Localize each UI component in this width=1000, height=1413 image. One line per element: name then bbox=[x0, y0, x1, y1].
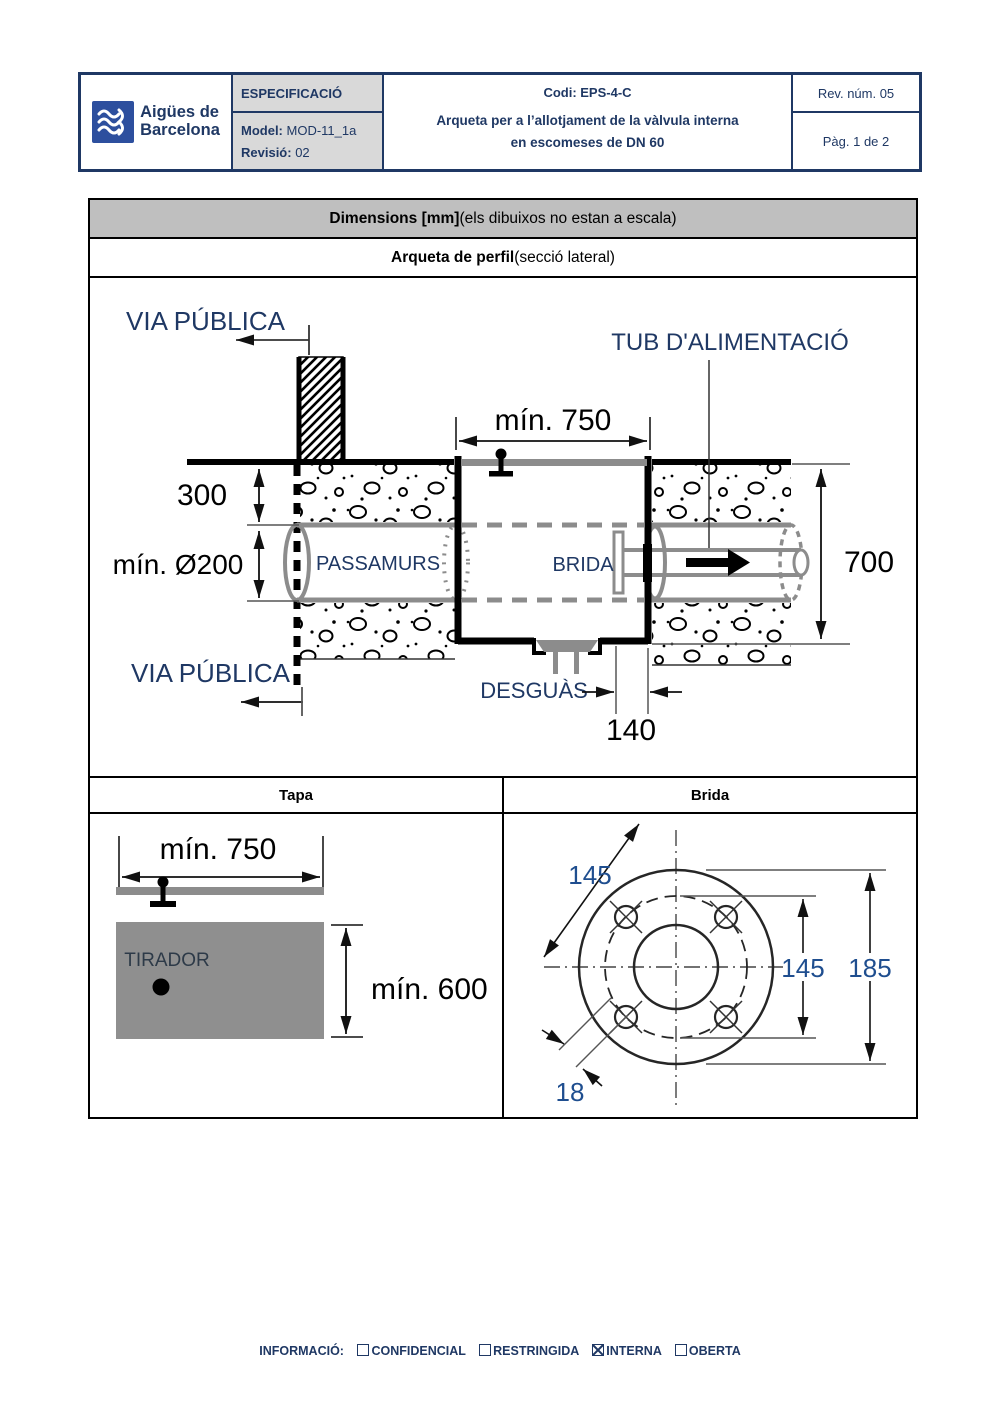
dim-300-label: 300 bbox=[177, 479, 227, 512]
checkbox-confidencial-icon bbox=[357, 1344, 369, 1356]
tapa-dim-min-750: mín. 750 bbox=[119, 833, 323, 890]
document-header-table: Aigües de Barcelona ESPECIFICACIÓ Model:… bbox=[78, 72, 922, 172]
main-drawing-panel: VIA PÚBLICA TUB D'ALIMENTACIÓ mín. 750 bbox=[90, 278, 916, 778]
footer-interna-label: INTERNA bbox=[606, 1344, 661, 1358]
desguas-label: DESGUÀS bbox=[480, 678, 588, 703]
revision-label: Revisió: bbox=[241, 145, 292, 160]
footer-restringida-label: RESTRINGIDA bbox=[493, 1344, 579, 1358]
dim-700-label: 700 bbox=[844, 546, 894, 579]
document-title-line1: Arqueta per a l’allotjament de la vàlvul… bbox=[384, 113, 791, 128]
document-title-cell: Codi: EPS-4-C Arqueta per a l’allotjamen… bbox=[384, 75, 793, 169]
document-title-line2: en escomeses de DN 60 bbox=[384, 135, 791, 150]
model-revision-cell: Model: MOD-11_1a Revisió: 02 bbox=[231, 113, 384, 169]
brida-label: BRIDA bbox=[552, 554, 614, 576]
dimensions-bar-note: (els dibuixos no estan a escala) bbox=[459, 210, 676, 228]
aigues-de-barcelona-logo-icon bbox=[92, 101, 134, 143]
tapa-drawing: mín. 750 TIRADOR bbox=[90, 814, 502, 1117]
dim-140-label: 140 bbox=[606, 714, 656, 747]
tapa-min-600-label: mín. 600 bbox=[371, 973, 488, 1006]
brida-145-diag-label: 145 bbox=[568, 860, 611, 890]
dimensions-bar-bold: Dimensions [mm] bbox=[329, 210, 459, 228]
section-title-bar: Arqueta de perfil (secció lateral) bbox=[90, 239, 916, 278]
tirador-dot bbox=[153, 979, 170, 996]
tapa-side-view bbox=[116, 877, 324, 908]
model-label: Model: bbox=[241, 123, 283, 138]
model-value: MOD-11_1a bbox=[283, 123, 356, 138]
tub-alimentacio-label: TUB D'ALIMENTACIÓ bbox=[611, 329, 849, 356]
dim-min-750: mín. 750 bbox=[456, 404, 650, 450]
checkbox-restringida-icon bbox=[479, 1344, 491, 1356]
document-code: Codi: EPS-4-C bbox=[384, 85, 791, 100]
tapa-drawing-panel: mín. 750 TIRADOR bbox=[90, 814, 504, 1117]
footer-confidencial-label: CONFIDENCIAL bbox=[371, 1344, 465, 1358]
page-number: Pàg. 1 de 2 bbox=[793, 113, 919, 169]
brida-18-label: 18 bbox=[556, 1077, 585, 1107]
tirador-label: TIRADOR bbox=[124, 950, 210, 971]
flow-direction-arrow-icon bbox=[686, 549, 750, 576]
hatched-wall bbox=[299, 357, 343, 462]
footer-label: INFORMACIÓ: bbox=[259, 1344, 344, 1358]
checkbox-oberta-icon bbox=[675, 1344, 687, 1356]
tapa-min-750-label: mín. 750 bbox=[160, 833, 277, 866]
brand-name: Aigües de Barcelona bbox=[140, 104, 220, 140]
dim-300: 300 bbox=[177, 469, 299, 525]
via-publica-top-label: VIA PÚBLICA bbox=[126, 306, 286, 336]
footer-oberta-label: OBERTA bbox=[689, 1344, 741, 1358]
classification-footer: INFORMACIÓ: CONFIDENCIAL RESTRINGIDA INT… bbox=[0, 1344, 1000, 1358]
dim-min-750-label: mín. 750 bbox=[495, 404, 612, 437]
via-publica-bottom-arrow-icon bbox=[241, 687, 303, 716]
chamber-cover bbox=[461, 449, 647, 477]
section-title-note: (secció lateral) bbox=[514, 249, 615, 267]
via-publica-bottom-label: VIA PÚBLICA bbox=[131, 658, 291, 688]
arqueta-section-drawing: VIA PÚBLICA TUB D'ALIMENTACIÓ mín. 750 bbox=[90, 278, 916, 778]
dim-min-o200: mín. Ø200 bbox=[113, 531, 299, 601]
revision-number: Rev. núm. 05 bbox=[793, 75, 919, 113]
bottom-panels-row: mín. 750 TIRADOR bbox=[90, 814, 916, 1117]
brida-header: Brida bbox=[504, 778, 916, 812]
brida-145-right-label: 145 bbox=[781, 953, 824, 983]
document-page: Aigües de Barcelona ESPECIFICACIÓ Model:… bbox=[0, 0, 1000, 1413]
dimensions-bar: Dimensions [mm] (els dibuixos no estan a… bbox=[90, 200, 916, 239]
spec-label: ESPECIFICACIÓ bbox=[231, 75, 384, 113]
tapa-dim-min-600: mín. 600 bbox=[331, 925, 488, 1037]
tapa-header: Tapa bbox=[90, 778, 504, 812]
subsection-header-row: Tapa Brida bbox=[90, 778, 916, 814]
brida-dim-145-diagonal: 145 bbox=[544, 824, 639, 957]
brand-cell: Aigües de Barcelona bbox=[81, 75, 231, 169]
passamurs-label: PASSAMURS bbox=[316, 553, 440, 575]
checkbox-interna-checked-icon bbox=[592, 1344, 604, 1356]
brida-185-label: 185 bbox=[848, 953, 891, 983]
section-title-bold: Arqueta de perfil bbox=[391, 249, 514, 267]
dim-min-o200-label: mín. Ø200 bbox=[113, 549, 244, 580]
tapa-top-view: TIRADOR bbox=[116, 922, 324, 1039]
brida-drawing-panel: 145 145 bbox=[504, 814, 916, 1117]
drain bbox=[536, 640, 598, 674]
drawing-table: Dimensions [mm] (els dibuixos no estan a… bbox=[88, 198, 918, 1119]
brida-drawing: 145 145 bbox=[504, 814, 916, 1117]
revision-value: 02 bbox=[292, 145, 310, 160]
